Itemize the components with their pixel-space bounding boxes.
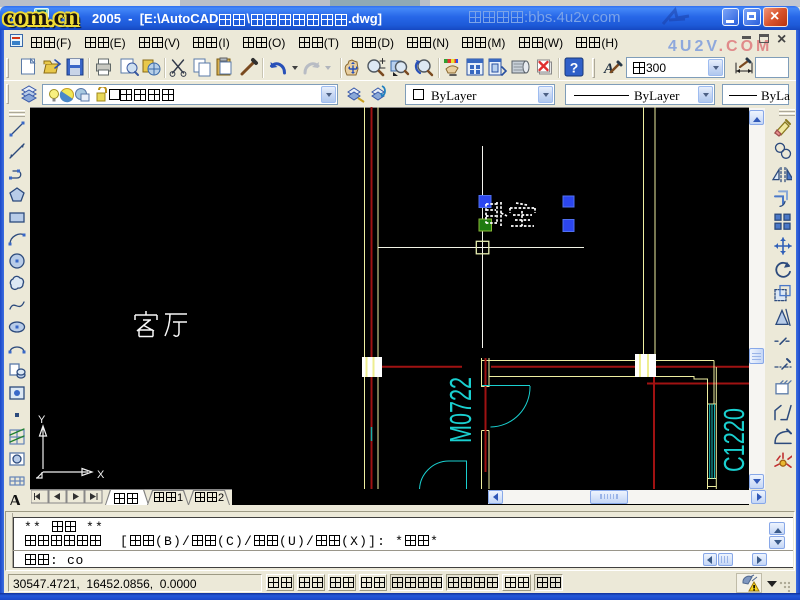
svg-text:C1220: C1220 <box>719 408 749 472</box>
svg-text:X: X <box>97 469 105 481</box>
svg-text:?: ? <box>570 60 579 76</box>
svg-text:Y: Y <box>38 414 46 426</box>
svg-text:M0722: M0722 <box>443 377 478 443</box>
